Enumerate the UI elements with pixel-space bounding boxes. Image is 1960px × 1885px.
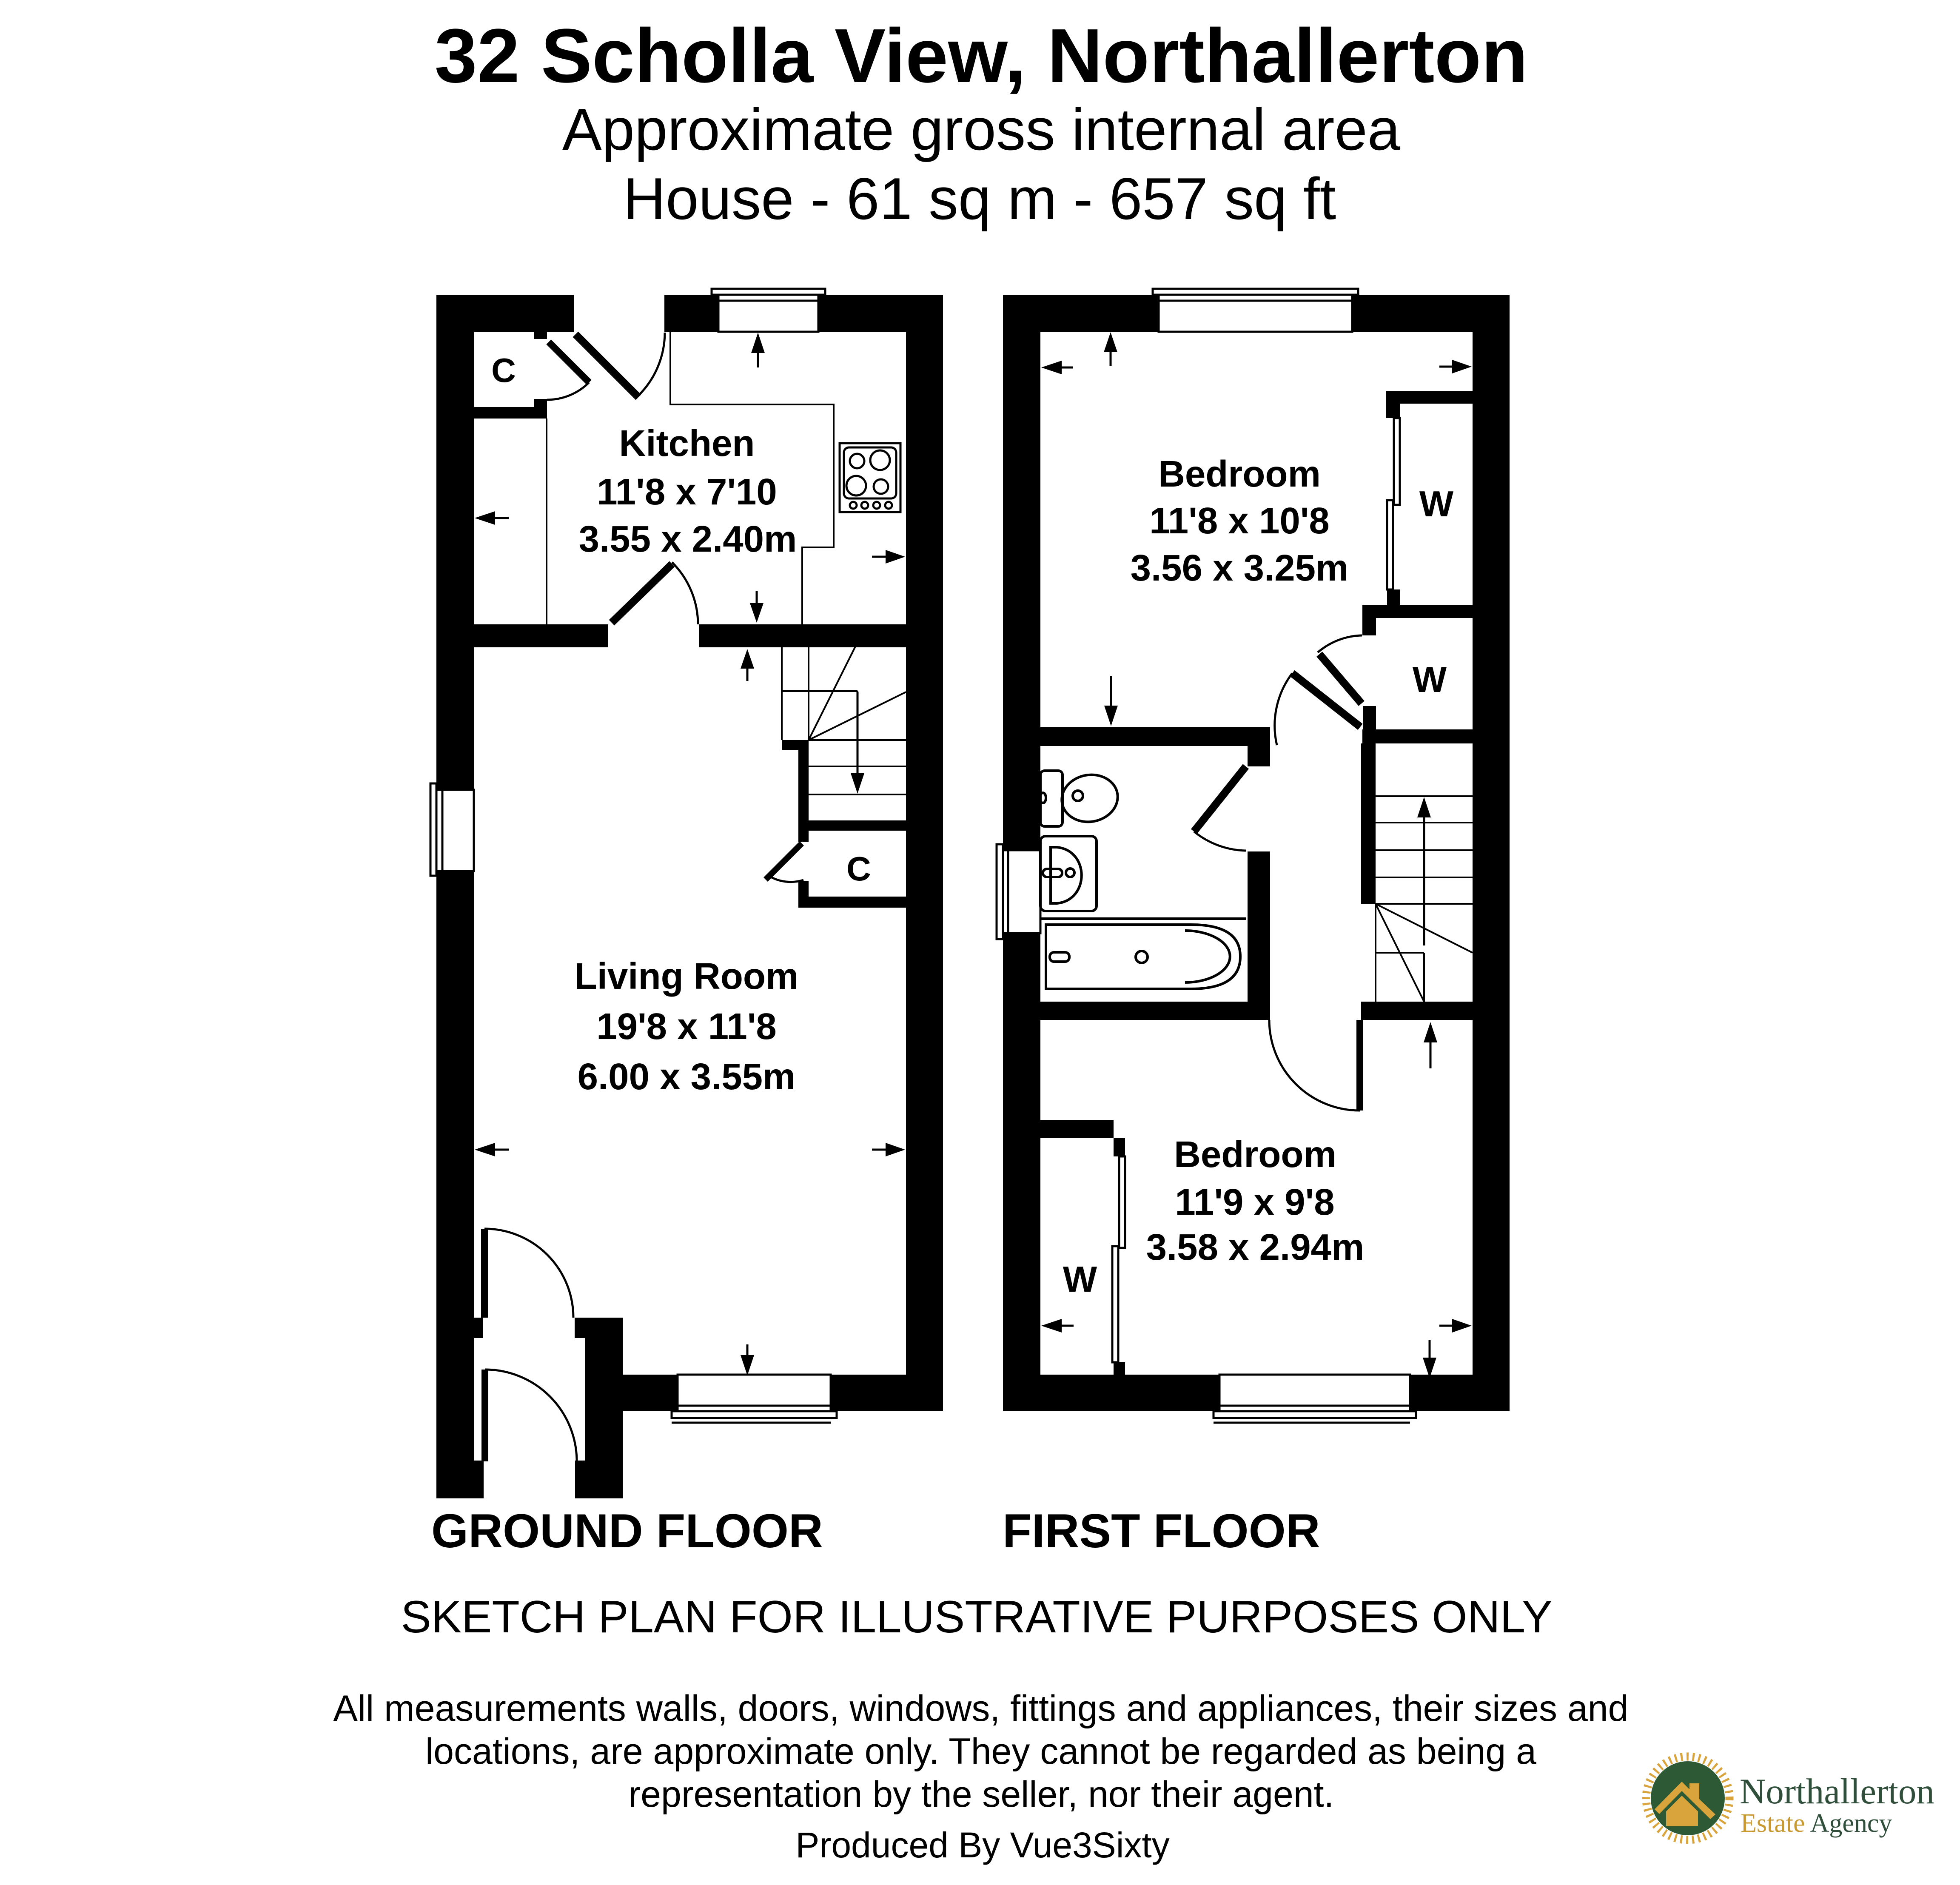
- svg-text:3.58 x 2.94m: 3.58 x 2.94m: [1146, 1227, 1365, 1268]
- svg-text:C: C: [491, 351, 516, 389]
- svg-text:Produced By Vue3Sixty: Produced By Vue3Sixty: [795, 1825, 1169, 1865]
- svg-text:Living Room: Living Room: [575, 956, 799, 997]
- svg-text:3.56 x 3.25m: 3.56 x 3.25m: [1131, 547, 1349, 589]
- svg-text:FIRST FLOOR: FIRST FLOOR: [1003, 1504, 1320, 1558]
- svg-text:32 Scholla View, Northallerton: 32 Scholla View, Northallerton: [435, 13, 1528, 99]
- svg-text:locations, are approximate onl: locations, are approximate only. They ca…: [425, 1731, 1536, 1772]
- svg-text:All measurements walls, doors,: All measurements walls, doors, windows, …: [333, 1688, 1629, 1729]
- svg-text:representation by the seller,: representation by the seller, nor their …: [629, 1774, 1334, 1815]
- svg-text:GROUND FLOOR: GROUND FLOOR: [431, 1504, 823, 1558]
- svg-text:W: W: [1063, 1259, 1097, 1300]
- svg-text:11'8 x 7'10: 11'8 x 7'10: [597, 471, 777, 513]
- svg-text:Kitchen: Kitchen: [619, 423, 755, 464]
- svg-text:Northallerton: Northallerton: [1740, 1771, 1934, 1811]
- svg-text:Bedroom: Bedroom: [1158, 453, 1321, 495]
- svg-text:19'8 x 11'8: 19'8 x 11'8: [596, 1006, 777, 1047]
- svg-text:House - 61 sq m - 657 sq ft: House - 61 sq m - 657 sq ft: [623, 166, 1336, 232]
- svg-text:11'8 x 10'8: 11'8 x 10'8: [1149, 500, 1330, 541]
- svg-text:Estate Agency: Estate Agency: [1741, 1809, 1892, 1838]
- svg-text:W: W: [1419, 484, 1454, 524]
- svg-text:11'9 x 9'8: 11'9 x 9'8: [1175, 1182, 1334, 1223]
- svg-text:6.00 x 3.55m: 6.00 x 3.55m: [578, 1056, 796, 1097]
- svg-text:C: C: [846, 850, 871, 888]
- svg-text:Approximate gross internal are: Approximate gross internal area: [562, 97, 1401, 162]
- svg-text:Bedroom: Bedroom: [1174, 1134, 1336, 1175]
- svg-text:W: W: [1413, 660, 1447, 700]
- svg-text:SKETCH PLAN FOR ILLUSTRATIVE P: SKETCH PLAN FOR ILLUSTRATIVE PURPOSES ON…: [401, 1591, 1552, 1642]
- svg-text:3.55 x 2.40m: 3.55 x 2.40m: [579, 518, 797, 560]
